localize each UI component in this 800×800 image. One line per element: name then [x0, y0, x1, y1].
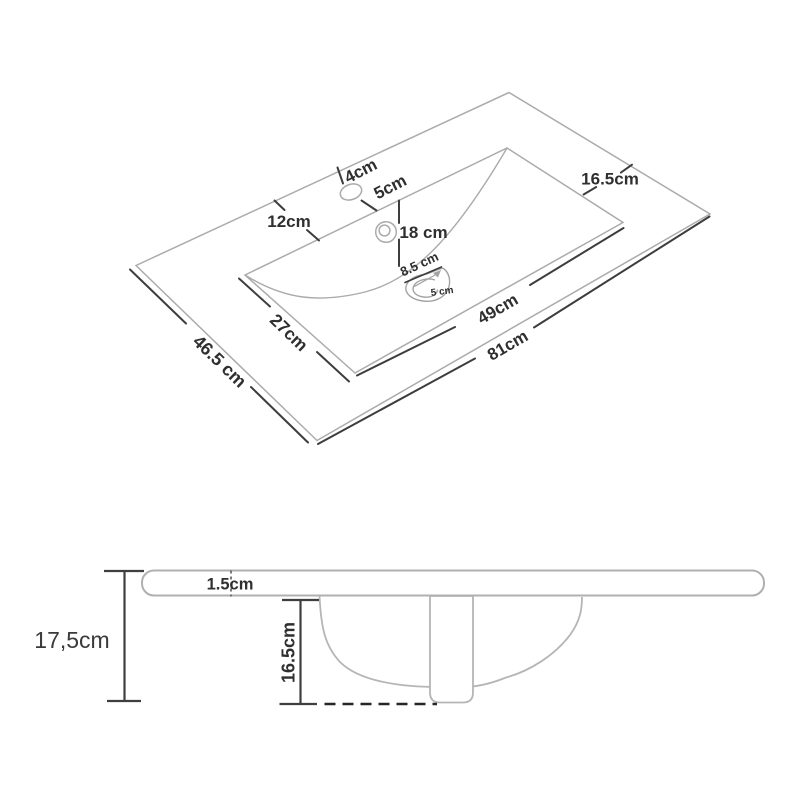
svg-text:16.5cm: 16.5cm	[279, 622, 299, 683]
svg-text:12cm: 12cm	[267, 212, 310, 231]
svg-text:18 cm: 18 cm	[399, 223, 447, 242]
svg-text:17,5cm: 17,5cm	[34, 627, 109, 653]
svg-text:1.5cm: 1.5cm	[207, 576, 254, 594]
svg-text:16.5cm: 16.5cm	[581, 170, 639, 189]
